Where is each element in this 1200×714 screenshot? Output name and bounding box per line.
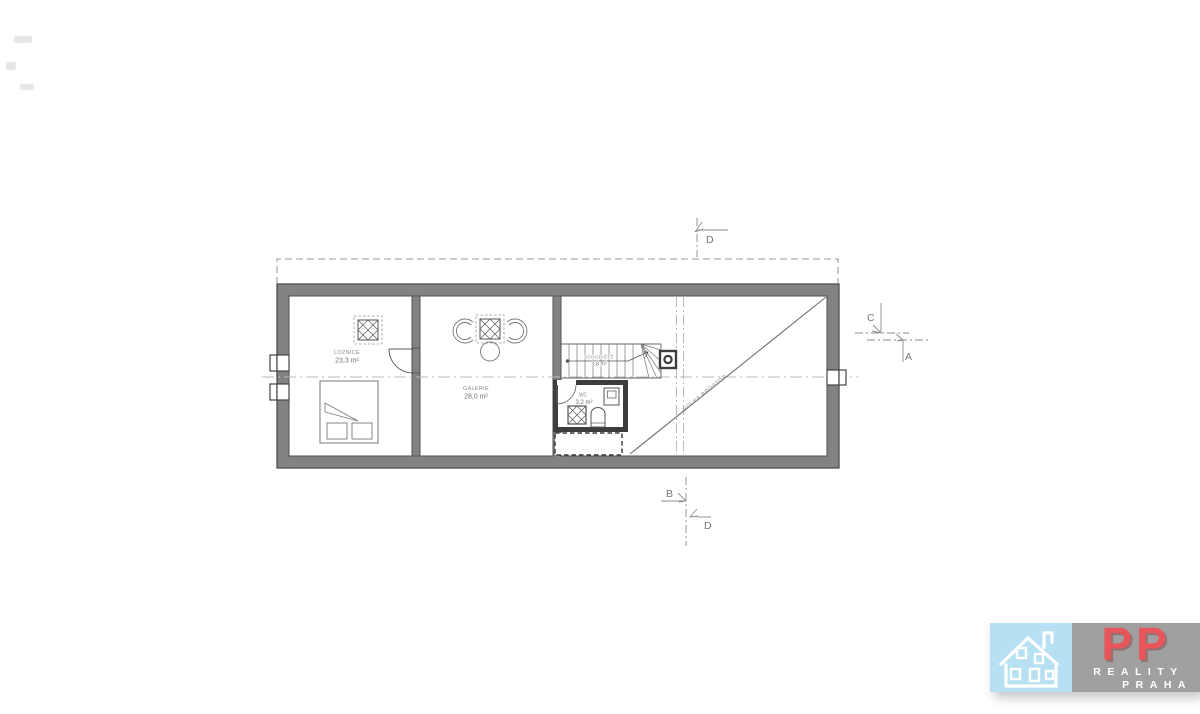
washbasin-icon — [604, 388, 619, 405]
toilet-icon — [591, 408, 605, 427]
page: SCHODIŠTĚ 3,8 m² WC — [0, 0, 1200, 714]
chimney — [660, 351, 676, 368]
section-letter: D — [704, 520, 712, 532]
wc-door-opening — [557, 380, 576, 385]
window-left-1 — [270, 355, 289, 371]
logo-house-panel — [990, 623, 1072, 692]
agency-logo: PP REALITY PRAHA — [990, 623, 1200, 692]
wc-skylight-icon — [568, 406, 586, 424]
logo-tagline-praha: PRAHA — [1072, 679, 1200, 691]
section-letter: C — [867, 312, 875, 324]
logo-brand: PP — [1072, 626, 1200, 664]
roof-outline-dashed — [277, 259, 838, 284]
section-marker-bottom-d: D — [690, 509, 712, 532]
section-letter: A — [905, 351, 912, 363]
staircase-area: 3,8 m² — [591, 362, 606, 368]
section-letter: D — [706, 234, 714, 246]
house-icon — [990, 623, 1072, 692]
bedroom-area: 23,3 m² — [335, 358, 359, 365]
logo-tagline-reality: REALITY — [1072, 666, 1200, 678]
bedroom-label: LOŽNICE — [334, 348, 360, 356]
wc-label: WC — [579, 393, 588, 399]
gallery-label: GALERIE — [463, 386, 489, 392]
bed-icon — [320, 381, 378, 443]
gallery-area: 28,0 m² — [464, 394, 488, 401]
section-marker-right-c: C — [855, 303, 909, 333]
wc-room: WC 3,2 m² — [553, 380, 628, 432]
section-marker-top-d: D — [695, 218, 728, 257]
staircase-label: SCHODIŠTĚ — [584, 353, 614, 360]
wc-area: 3,2 m² — [575, 400, 592, 406]
section-marker-right-a: A — [867, 334, 928, 363]
window-left-2 — [270, 384, 289, 400]
void-dashed-area — [555, 433, 622, 455]
window-right — [827, 370, 846, 385]
section-marker-bottom-b: B — [661, 477, 686, 546]
bedroom-skylight-icon — [354, 316, 382, 344]
table-icon — [476, 315, 504, 343]
logo-text-panel: PP REALITY PRAHA — [1072, 623, 1200, 692]
floor-plan: SCHODIŠTĚ 3,8 m² WC — [0, 0, 1200, 714]
section-letter: B — [666, 488, 673, 500]
